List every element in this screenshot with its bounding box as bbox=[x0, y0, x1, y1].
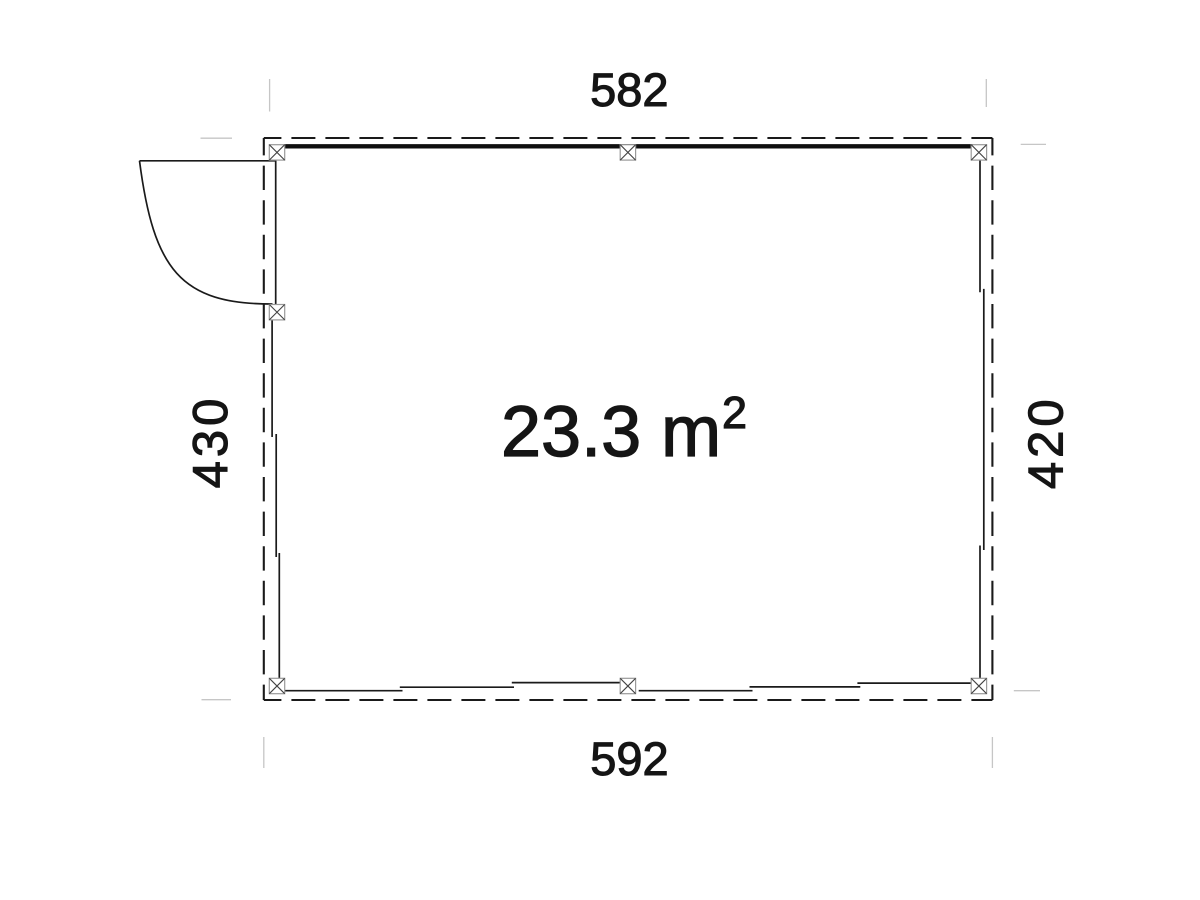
svg-text:430: 430 bbox=[184, 395, 238, 489]
svg-text:420: 420 bbox=[1019, 395, 1073, 489]
svg-text:592: 592 bbox=[590, 732, 668, 785]
svg-text:582: 582 bbox=[590, 63, 668, 116]
svg-text:2: 2 bbox=[722, 387, 747, 438]
svg-text:23.3 m: 23.3 m bbox=[501, 392, 721, 472]
